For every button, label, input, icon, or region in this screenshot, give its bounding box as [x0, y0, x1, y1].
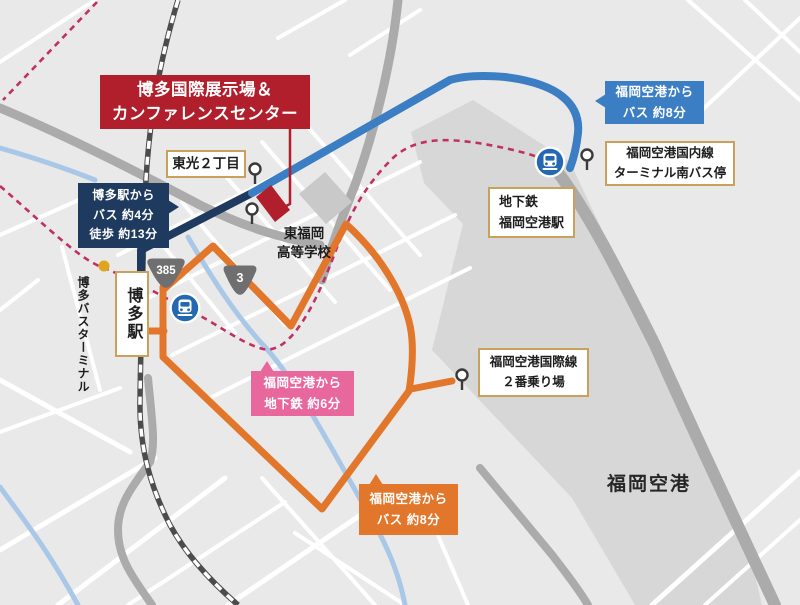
- airport-text: 福岡空港: [607, 474, 691, 495]
- toko-text: 東光２丁目: [168, 154, 244, 175]
- from-hakata-line2: バス 約4分: [78, 206, 169, 225]
- bus-terminal-dot: [99, 261, 110, 272]
- intl-stop-line2: ２番乗り場: [480, 373, 587, 392]
- train-station-icon-hakata: [170, 293, 201, 324]
- intl-bus-line1: 福岡空港から: [359, 489, 458, 509]
- label-intl-terminal-bus-stop: 福岡空港国際線 ２番乗り場: [478, 348, 589, 397]
- from-hakata-line3: 徒歩 約13分: [78, 225, 169, 244]
- label-higashi-fukuoka-school: 東福岡 高等学校: [268, 225, 340, 263]
- venue-title-line1: 博多国際展示場＆: [100, 78, 310, 102]
- train-station-icon-airport-subway: [535, 147, 566, 178]
- school-line1: 東福岡: [268, 225, 340, 244]
- label-toko-2chome: 東光２丁目: [166, 150, 246, 178]
- hakata-station-text: 博多駅: [120, 287, 145, 341]
- bubble-pointer: [168, 200, 179, 214]
- bus-terminal-text: 博多バスターミナル: [76, 276, 90, 393]
- label-subway-airport-station: 地下鉄 福岡空港駅: [488, 187, 575, 238]
- subway-route-line2: 地下鉄 約6分: [251, 394, 354, 414]
- bubble-subway-route: 福岡空港から 地下鉄 約6分: [251, 371, 354, 416]
- bubble-pointer: [369, 474, 383, 485]
- domestic-bus-line1: 福岡空港から: [605, 82, 704, 102]
- svg-text:385: 385: [156, 265, 176, 277]
- from-hakata-line1: 博多駅から: [78, 186, 169, 205]
- label-fukuoka-airport: 福岡空港: [607, 469, 691, 496]
- bubble-from-hakata-station: 博多駅から バス 約4分 徒歩 約13分: [78, 183, 169, 248]
- domestic-stop-line2: ターミナル南バス停: [607, 164, 733, 183]
- bubble-domestic-bus: 福岡空港から バス 約8分: [605, 81, 704, 124]
- venue-title-line2: カンファレンスセンター: [100, 102, 310, 126]
- bubble-pointer: [260, 361, 274, 372]
- access-map: 385 3 博多国際展示場＆ カンファレンスセンター 東光２丁目 博多駅から バ…: [0, 0, 800, 605]
- subway-station-line1: 地下鉄: [499, 192, 573, 212]
- subway-station-line2: 福岡空港駅: [499, 213, 573, 233]
- intl-bus-line2: バス 約8分: [359, 510, 458, 530]
- school-line2: 高等学校: [268, 244, 340, 263]
- subway-route-line1: 福岡空港から: [251, 373, 354, 393]
- domestic-bus-line2: バス 約8分: [605, 103, 704, 123]
- label-hakata-bus-terminal: 博多バスターミナル: [74, 276, 91, 406]
- label-hakata-station: 博多駅: [115, 271, 149, 357]
- intl-stop-line1: 福岡空港国際線: [480, 353, 587, 372]
- bubble-pointer: [595, 94, 606, 108]
- label-domestic-terminal-bus-stop: 福岡空港国内線 ターミナル南バス停: [605, 141, 735, 186]
- venue-title-box: 博多国際展示場＆ カンファレンスセンター: [100, 75, 310, 129]
- bubble-intl-bus: 福岡空港から バス 約8分: [359, 484, 458, 535]
- domestic-stop-line1: 福岡空港国内線: [607, 144, 733, 163]
- svg-text:3: 3: [237, 271, 244, 285]
